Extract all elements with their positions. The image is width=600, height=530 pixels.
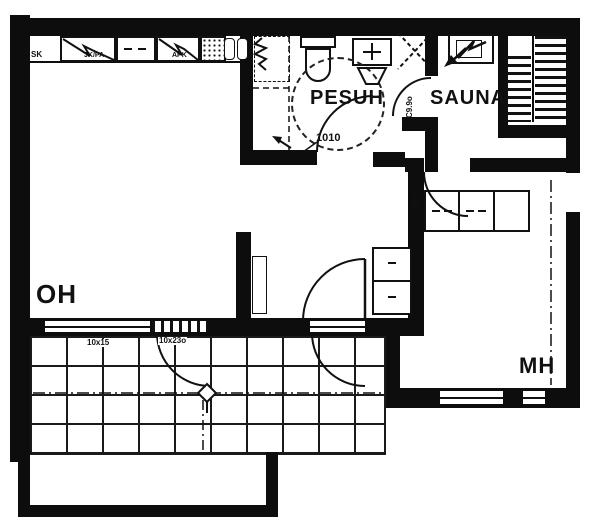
balcony-door-mark: 10x23o — [158, 337, 187, 345]
bedroom-label: MH — [519, 355, 555, 377]
closet-divider — [493, 190, 495, 232]
closet-dash — [432, 210, 440, 212]
wall-bedroom-west-lower — [385, 336, 400, 408]
closet-divider — [372, 280, 412, 282]
closet-dash — [466, 210, 474, 212]
cabinet-dash — [138, 48, 146, 50]
balcony-rail-bottom — [18, 505, 278, 517]
drain-arrow — [277, 139, 291, 148]
balcony-tile-floor — [30, 336, 386, 455]
washroom-label: PESUH — [310, 88, 384, 108]
wall-sauna-west-lower — [425, 131, 438, 172]
kitchen-cabinet — [116, 36, 156, 62]
closet-dash — [388, 262, 396, 264]
sauna-label: SAUNA — [430, 88, 506, 108]
washroom-door-mark: 1010 — [316, 133, 340, 144]
cabinet-dash — [124, 48, 132, 50]
balcony-rail-right — [266, 452, 278, 517]
closet-divider — [458, 190, 460, 232]
cleaning-closet-mark: SK — [31, 51, 42, 59]
living-room-label: OH — [36, 281, 77, 307]
wall-washroom-south-left — [240, 150, 317, 165]
bedroom-window-small-line — [523, 397, 545, 399]
toilet-tank — [300, 36, 336, 48]
stove-unit — [200, 36, 226, 62]
wall-right-lower — [566, 212, 580, 408]
stairs-divider — [532, 36, 534, 122]
wall-top — [28, 18, 580, 36]
wall-bedroom-north-right — [470, 158, 566, 172]
washer-reserve — [254, 36, 290, 82]
floor-plan: OH PESUH SAUNA MH 1010 C9.9o 09o 10x15 1… — [0, 0, 600, 530]
sauna-door-mark: C9.9o — [406, 96, 414, 118]
living-window-line — [45, 326, 150, 328]
sink-basin — [237, 38, 248, 60]
fridge-freezer-mark: JK/PA — [84, 52, 104, 59]
wall-left — [10, 15, 30, 462]
closet-dash — [478, 210, 486, 212]
wall-stairs-bottom — [498, 125, 580, 138]
sink-basin — [224, 38, 235, 60]
living-window-mark: 10x15 — [86, 339, 110, 347]
wall-bedroom-north-left — [405, 158, 424, 172]
drain-arrow-head — [272, 136, 282, 144]
hall-balcony-door-line — [310, 326, 365, 328]
wall-right-upper — [566, 36, 580, 173]
living-shelf — [252, 256, 267, 314]
wall-living-stub — [236, 232, 251, 336]
closet-dash — [444, 210, 452, 212]
stairs-flight-left — [507, 56, 531, 122]
wall-sauna-west-upper — [425, 36, 438, 76]
stairs-flight-right — [535, 36, 566, 122]
bedroom-door-mark: 09o — [412, 194, 420, 208]
living-balcony-door — [152, 321, 208, 332]
bedroom-window-line — [440, 397, 503, 399]
sauna-stove-inner — [456, 40, 482, 58]
dishwasher-mark: APK — [172, 52, 187, 59]
closet-dash — [388, 296, 396, 298]
hall-balcony-door-arc-in — [303, 259, 365, 321]
wall-washroom-south-right — [373, 152, 405, 167]
wall-sauna-west-stub — [402, 117, 438, 131]
